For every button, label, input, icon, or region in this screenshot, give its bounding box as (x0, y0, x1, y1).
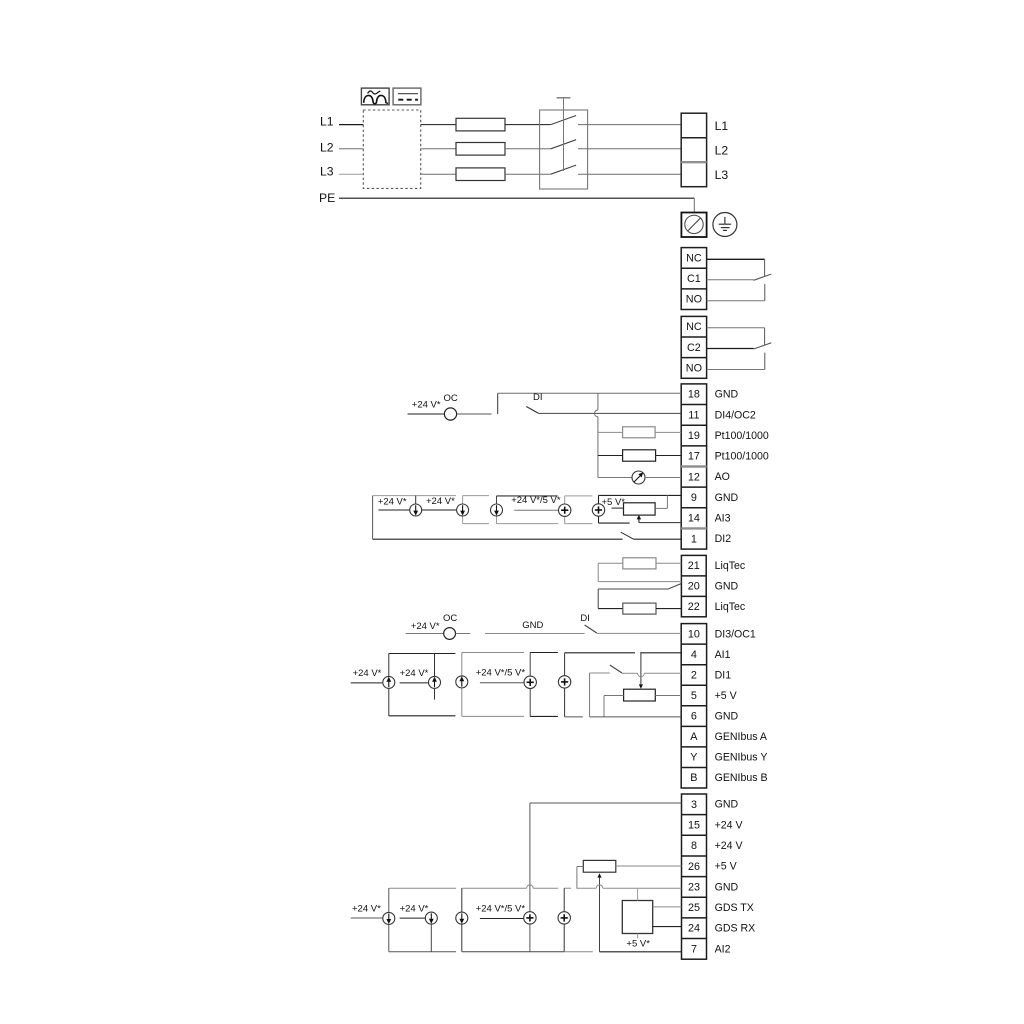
svg-text:L1: L1 (715, 119, 729, 133)
svg-text:A: A (690, 731, 698, 743)
svg-text:NC: NC (686, 252, 702, 264)
svg-text:GDS RX: GDS RX (715, 923, 756, 935)
svg-text:GENIbus B: GENIbus B (715, 772, 768, 784)
svg-text:4: 4 (691, 649, 697, 661)
svg-text:GND: GND (522, 620, 543, 631)
svg-text:LiqTec: LiqTec (715, 601, 746, 613)
svg-text:11: 11 (688, 409, 699, 421)
svg-text:Pt100/1000: Pt100/1000 (715, 451, 769, 463)
svg-text:2: 2 (691, 669, 697, 681)
svg-text:L3: L3 (320, 164, 334, 178)
svg-text:Y: Y (690, 752, 697, 764)
svg-text:L3: L3 (715, 168, 729, 182)
svg-text:AI3: AI3 (715, 513, 731, 525)
svg-text:14: 14 (688, 513, 700, 525)
svg-text:B: B (690, 772, 697, 784)
svg-text:8: 8 (691, 840, 697, 852)
svg-text:26: 26 (688, 861, 700, 873)
svg-text:21: 21 (688, 560, 700, 572)
svg-text:DI1: DI1 (715, 669, 732, 681)
svg-text:19: 19 (688, 430, 700, 442)
svg-text:+24 V*/5 V*: +24 V*/5 V* (476, 667, 526, 678)
svg-text:24: 24 (688, 923, 700, 935)
svg-text:DI: DI (580, 613, 590, 624)
svg-text:15: 15 (688, 819, 700, 831)
svg-text:GND: GND (715, 492, 739, 504)
svg-text:Pt100/1000: Pt100/1000 (715, 430, 769, 442)
svg-text:DI3/OC1: DI3/OC1 (715, 628, 756, 640)
svg-text:OC: OC (444, 393, 458, 404)
svg-text:+24 V*: +24 V* (352, 903, 381, 914)
svg-text:GENIbus A: GENIbus A (715, 731, 768, 743)
svg-text:+24 V*/5 V*: +24 V*/5 V* (476, 903, 526, 914)
svg-text:DI: DI (533, 392, 543, 403)
svg-text:1: 1 (691, 533, 697, 545)
svg-text:NO: NO (686, 294, 702, 306)
svg-text:+24 V: +24 V (715, 819, 744, 831)
svg-text:NO: NO (686, 362, 702, 374)
svg-text:L2: L2 (715, 143, 729, 157)
svg-text:7: 7 (691, 943, 697, 955)
svg-text:+24 V*: +24 V* (400, 903, 429, 914)
svg-text:+24 V*: +24 V* (400, 668, 429, 679)
svg-text:GDS TX: GDS TX (715, 902, 754, 914)
svg-text:GND: GND (715, 799, 739, 811)
svg-text:18: 18 (688, 389, 700, 401)
svg-text:+24 V*: +24 V* (412, 400, 441, 411)
svg-text:20: 20 (688, 581, 700, 593)
svg-text:GND: GND (715, 389, 739, 401)
svg-text:GND: GND (715, 881, 739, 893)
svg-text:23: 23 (688, 881, 700, 893)
svg-text:+24 V: +24 V (715, 840, 744, 852)
svg-text:+24 V*/5 V*: +24 V*/5 V* (511, 495, 561, 506)
svg-text:10: 10 (688, 628, 700, 640)
svg-text:GND: GND (715, 581, 739, 593)
svg-text:+24 V*: +24 V* (426, 496, 455, 507)
svg-text:L2: L2 (320, 140, 334, 154)
svg-text:+5 V*: +5 V* (626, 938, 650, 949)
svg-text:22: 22 (688, 601, 700, 613)
svg-text:AI1: AI1 (715, 649, 731, 661)
svg-text:DI4/OC2: DI4/OC2 (715, 409, 756, 421)
svg-text:L1: L1 (320, 115, 334, 129)
svg-text:+24 V*: +24 V* (378, 496, 407, 507)
svg-text:PE: PE (319, 191, 335, 205)
svg-text:OC: OC (443, 613, 457, 624)
svg-text:9: 9 (691, 492, 697, 504)
svg-text:C1: C1 (687, 273, 701, 285)
svg-text:6: 6 (691, 711, 697, 723)
svg-text:GND: GND (715, 710, 739, 722)
svg-text:+5 V: +5 V (715, 690, 738, 702)
svg-text:5: 5 (691, 690, 697, 702)
svg-text:AO: AO (715, 471, 730, 483)
svg-text:NC: NC (686, 321, 702, 333)
svg-text:+24 V*: +24 V* (353, 668, 382, 679)
svg-text:LiqTec: LiqTec (715, 560, 746, 572)
svg-text:C2: C2 (687, 342, 701, 354)
svg-text:+24 V*: +24 V* (411, 621, 440, 632)
svg-text:17: 17 (688, 451, 700, 463)
svg-text:+5 V: +5 V (715, 861, 738, 873)
svg-text:AI2: AI2 (715, 943, 731, 955)
svg-text:GENIbus Y: GENIbus Y (715, 752, 768, 764)
svg-text:DI2: DI2 (715, 533, 732, 545)
svg-text:3: 3 (691, 799, 697, 811)
svg-text:12: 12 (688, 471, 700, 483)
svg-text:25: 25 (688, 902, 700, 914)
svg-text:+5 V*: +5 V* (602, 497, 626, 508)
